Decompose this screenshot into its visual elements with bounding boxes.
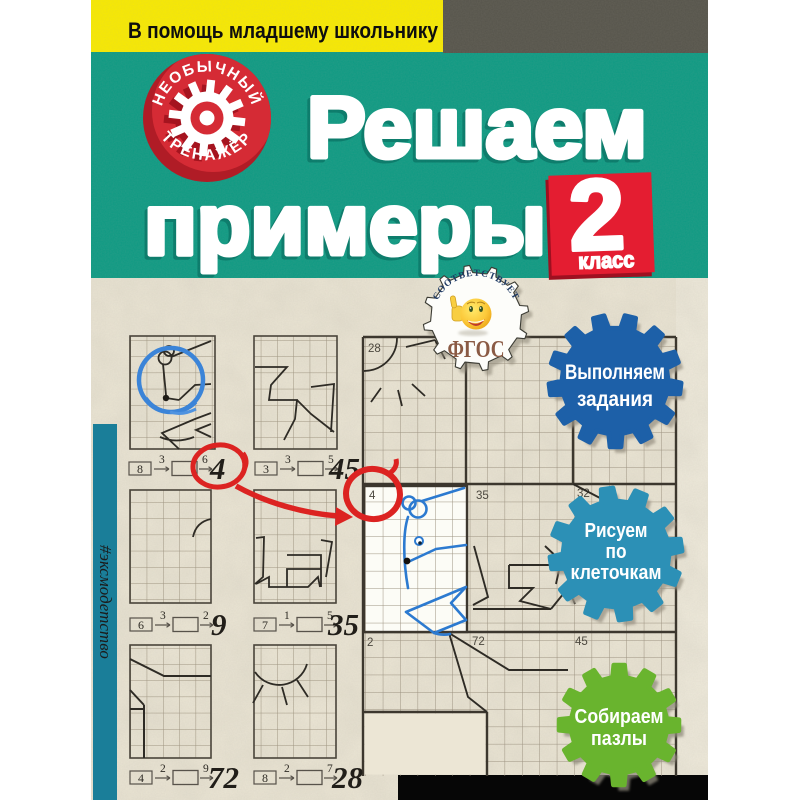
svg-text:4: 4 bbox=[369, 490, 376, 502]
svg-text:6: 6 bbox=[138, 618, 144, 632]
svg-text:клеточкам: клеточкам bbox=[571, 562, 662, 584]
svg-text:2: 2 bbox=[367, 637, 373, 649]
svg-text:2: 2 bbox=[284, 763, 290, 775]
svg-text:45: 45 bbox=[575, 636, 588, 648]
svg-text:примеры: примеры bbox=[144, 177, 546, 273]
svg-text:8: 8 bbox=[262, 771, 268, 785]
svg-text:9: 9 bbox=[211, 607, 227, 642]
svg-text:2: 2 bbox=[203, 610, 209, 622]
svg-text:8: 8 bbox=[137, 462, 143, 476]
svg-text:#эксмодетство: #эксмодетство bbox=[96, 545, 115, 659]
svg-text:3: 3 bbox=[160, 610, 166, 622]
svg-text:35: 35 bbox=[327, 607, 359, 642]
svg-text:пазлы: пазлы bbox=[591, 728, 647, 750]
svg-text:7: 7 bbox=[262, 618, 268, 632]
svg-text:по: по bbox=[606, 541, 627, 563]
svg-text:класс: класс bbox=[578, 247, 635, 274]
svg-text:4: 4 bbox=[209, 451, 226, 486]
svg-text:72: 72 bbox=[472, 636, 485, 648]
svg-text:3: 3 bbox=[285, 454, 291, 466]
svg-text:задания: задания bbox=[577, 387, 653, 411]
svg-text:4: 4 bbox=[138, 771, 144, 785]
svg-text:Рисуем: Рисуем bbox=[585, 520, 648, 542]
svg-text:Собираем: Собираем bbox=[575, 706, 664, 728]
svg-text:45: 45 bbox=[328, 451, 360, 486]
svg-text:28: 28 bbox=[331, 760, 364, 795]
svg-text:В помощь младшему школьнику: В помощь младшему школьнику bbox=[128, 18, 439, 43]
svg-text:2: 2 bbox=[160, 763, 166, 775]
svg-text:28: 28 bbox=[368, 343, 381, 355]
svg-text:3: 3 bbox=[263, 462, 269, 476]
svg-text:72: 72 bbox=[208, 760, 239, 795]
svg-text:35: 35 bbox=[476, 490, 489, 502]
svg-text:ФГОС: ФГОС bbox=[448, 337, 505, 363]
svg-text:3: 3 bbox=[159, 454, 165, 466]
svg-text:Выполняем: Выполняем bbox=[565, 360, 665, 384]
svg-text:1: 1 bbox=[284, 610, 290, 622]
svg-text:6: 6 bbox=[202, 454, 208, 466]
